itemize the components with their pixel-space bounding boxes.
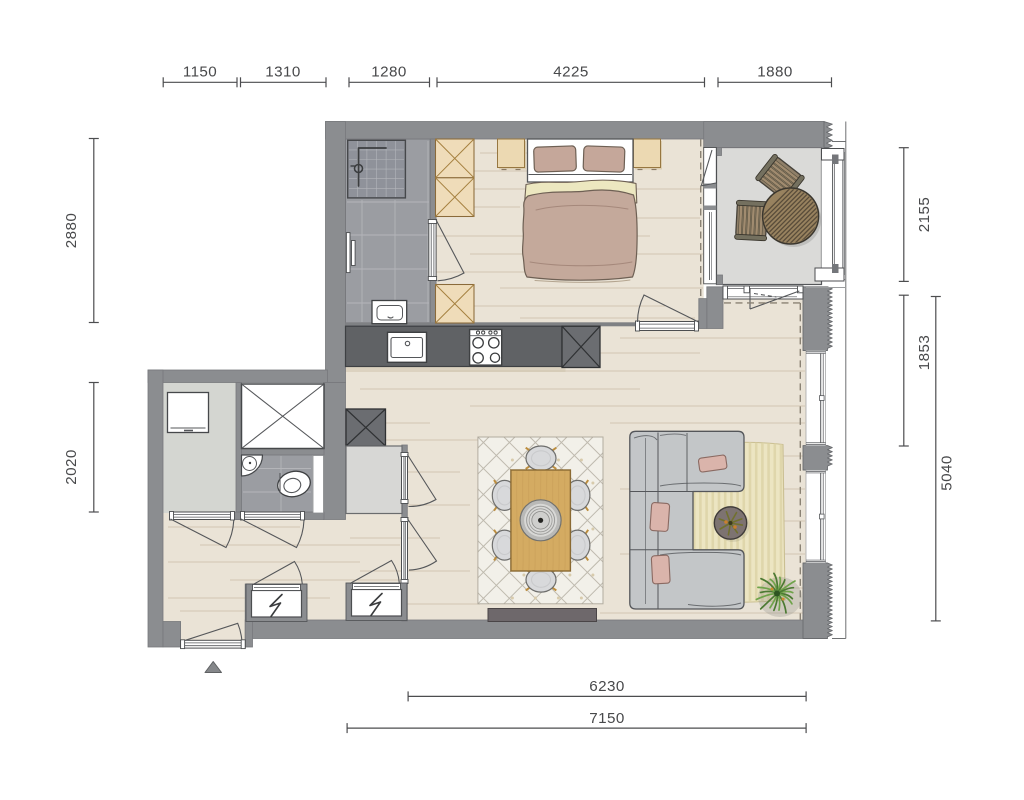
svg-text:7150: 7150 xyxy=(589,710,624,727)
svg-text:1853: 1853 xyxy=(916,335,933,370)
svg-text:5040: 5040 xyxy=(939,455,956,490)
svg-text:1150: 1150 xyxy=(183,64,217,81)
svg-text:1310: 1310 xyxy=(265,64,300,81)
svg-text:2155: 2155 xyxy=(916,197,933,232)
svg-text:4225: 4225 xyxy=(553,64,588,81)
svg-text:1880: 1880 xyxy=(757,64,792,81)
svg-text:2880: 2880 xyxy=(63,213,80,248)
svg-text:1280: 1280 xyxy=(371,64,406,81)
svg-text:2020: 2020 xyxy=(63,449,80,484)
svg-text:6230: 6230 xyxy=(589,678,624,695)
